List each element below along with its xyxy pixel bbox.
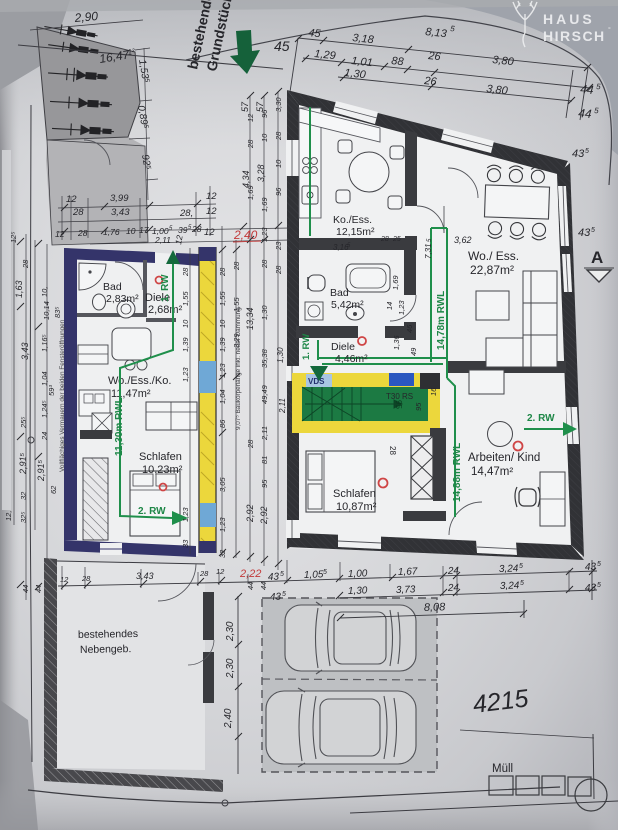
svg-text:3,28: 3,28 <box>256 164 266 182</box>
svg-text:1,23: 1,23 <box>218 517 227 532</box>
svg-text:44: 44 <box>578 106 593 121</box>
svg-text:26: 26 <box>423 75 438 88</box>
svg-text:5: 5 <box>597 582 601 589</box>
svg-text:44: 44 <box>246 582 255 590</box>
svg-text:12,15m²: 12,15m² <box>336 226 375 238</box>
svg-text:62: 62 <box>49 485 58 494</box>
svg-text:1,67: 1,67 <box>398 566 418 578</box>
svg-text:26: 26 <box>427 50 442 63</box>
svg-text:25: 25 <box>392 236 401 243</box>
svg-text:8,13: 8,13 <box>425 26 448 40</box>
svg-text:1,69: 1,69 <box>260 197 269 212</box>
svg-text:86: 86 <box>218 419 227 428</box>
svg-text:32: 32 <box>19 491 28 500</box>
svg-text:28,: 28, <box>179 208 193 219</box>
svg-text:44: 44 <box>21 585 30 593</box>
svg-text:14,88m RWL: 14,88m RWL <box>452 443 463 502</box>
svg-text:2. RW: 2. RW <box>527 413 555 424</box>
svg-text:2,11: 2,11 <box>260 426 269 441</box>
svg-text:12: 12 <box>204 227 215 238</box>
svg-text:4,46m²: 4,46m² <box>335 353 368 365</box>
svg-text:12: 12 <box>206 206 217 217</box>
svg-text:96: 96 <box>274 187 283 196</box>
svg-text:45: 45 <box>274 38 290 54</box>
svg-text:43: 43 <box>585 583 597 594</box>
svg-text:2,92: 2,92 <box>245 504 255 523</box>
svg-text:9,07⁵ Baukörperlänge inkl. neu: 9,07⁵ Baukörperlänge inkl. neuer Dämmung <box>235 307 242 430</box>
svg-text:12: 12 <box>173 234 185 245</box>
svg-text:88: 88 <box>391 55 405 68</box>
svg-text:32⁵: 32⁵ <box>19 512 28 524</box>
svg-text:2,11: 2,11 <box>278 398 287 414</box>
svg-text:3,24: 3,24 <box>499 563 519 575</box>
svg-text:24: 24 <box>447 566 460 577</box>
svg-text:°: ° <box>608 26 611 34</box>
svg-text:28: 28 <box>246 439 255 449</box>
svg-text:12,: 12, <box>4 511 13 521</box>
svg-text:13,34: 13,34 <box>245 307 255 330</box>
svg-text:12: 12 <box>66 194 77 205</box>
svg-text:44: 44 <box>259 582 268 590</box>
svg-text:10,: 10, <box>40 287 49 297</box>
svg-text:28: 28 <box>246 139 255 149</box>
svg-text:HAUS: HAUS <box>543 11 595 27</box>
svg-text:Arbeiten/ Kind: Arbeiten/ Kind <box>468 452 540 464</box>
svg-text:1,04: 1,04 <box>40 371 49 386</box>
svg-text:2. RW: 2. RW <box>138 506 166 517</box>
svg-text:Schlafen: Schlafen <box>333 488 376 500</box>
svg-text:59³: 59³ <box>47 385 56 396</box>
svg-text:1,23: 1,23 <box>397 300 406 315</box>
svg-text:3,24: 3,24 <box>500 580 520 592</box>
svg-text:2,92: 2,92 <box>259 506 269 525</box>
svg-text:2,68m²: 2,68m² <box>148 304 183 316</box>
svg-text:28: 28 <box>77 228 88 238</box>
svg-text:1,16⁵: 1,16⁵ <box>40 334 49 352</box>
svg-text:28: 28 <box>181 267 190 277</box>
svg-text:12⁵: 12⁵ <box>9 232 18 244</box>
svg-text:Nebengeb.: Nebengeb. <box>80 643 132 656</box>
svg-text:1,63: 1,63 <box>14 280 24 298</box>
svg-text:16: 16 <box>429 387 438 396</box>
svg-text:10,87m²: 10,87m² <box>336 501 377 513</box>
svg-text:5: 5 <box>585 148 589 155</box>
svg-text:10: 10 <box>274 159 283 168</box>
svg-text:5: 5 <box>282 591 286 598</box>
svg-text:95: 95 <box>260 479 269 488</box>
svg-text:95: 95 <box>414 402 423 411</box>
svg-text:5: 5 <box>597 561 601 568</box>
svg-text:81: 81 <box>260 456 269 464</box>
svg-text:28: 28 <box>72 207 84 218</box>
svg-text:Wo./ Ess.: Wo./ Ess. <box>468 249 519 263</box>
svg-text:43: 43 <box>585 562 597 573</box>
svg-text:1,29: 1,29 <box>314 48 337 62</box>
svg-text:5: 5 <box>591 227 595 234</box>
svg-text:83⁵: 83⁵ <box>53 307 62 319</box>
svg-text:7,31: 7,31 <box>424 243 433 259</box>
svg-text:28: 28 <box>21 259 30 269</box>
svg-text:3,18: 3,18 <box>352 32 375 46</box>
svg-text:1,55: 1,55 <box>181 291 190 306</box>
svg-text:HIRSCH: HIRSCH <box>543 28 606 44</box>
svg-text:5: 5 <box>519 563 523 570</box>
svg-text:Bad: Bad <box>330 287 349 299</box>
svg-text:39: 39 <box>178 225 188 235</box>
svg-text:3,80: 3,80 <box>486 83 509 97</box>
svg-text:2,91⁵: 2,91⁵ <box>36 459 46 482</box>
svg-text:3,43: 3,43 <box>136 571 154 581</box>
svg-text:3,62: 3,62 <box>454 235 472 245</box>
svg-text:Vollflächiges Vermauern der be: Vollflächiges Vermauern der beiden Fenst… <box>59 319 66 472</box>
svg-text:17: 17 <box>139 225 149 235</box>
svg-text:14,78m RWL: 14,78m RWL <box>436 291 447 350</box>
svg-text:Wo./Ess./Ko.: Wo./Ess./Ko. <box>108 375 171 387</box>
svg-text:12: 12 <box>246 113 255 122</box>
svg-text:43: 43 <box>268 572 280 583</box>
svg-text:28: 28 <box>260 259 269 269</box>
svg-text:Diele: Diele <box>331 341 355 353</box>
svg-text:49,49: 49,49 <box>260 384 269 404</box>
svg-text:95: 95 <box>394 400 403 409</box>
svg-text:33: 33 <box>181 539 190 548</box>
svg-text:2,11: 2,11 <box>154 235 171 245</box>
svg-text:14: 14 <box>385 302 394 310</box>
svg-text:49: 49 <box>409 347 418 356</box>
svg-text:5: 5 <box>323 569 327 576</box>
svg-text:43: 43 <box>572 148 585 160</box>
svg-text:1,30: 1,30 <box>276 347 285 363</box>
svg-text:28: 28 <box>274 265 283 275</box>
svg-text:24: 24 <box>447 583 460 594</box>
svg-text:1,30: 1,30 <box>260 305 269 320</box>
svg-text:28: 28 <box>274 131 283 141</box>
svg-text:3,30: 3,30 <box>274 97 283 112</box>
svg-text:1,24⁵: 1,24⁵ <box>40 400 49 418</box>
svg-text:10: 10 <box>218 319 227 328</box>
svg-text:5,42m²: 5,42m² <box>331 299 364 311</box>
svg-text:57: 57 <box>240 101 250 112</box>
svg-text:bestehendes: bestehendes <box>78 628 138 641</box>
svg-text:45: 45 <box>308 27 322 40</box>
svg-text:1,36: 1,36 <box>392 335 401 350</box>
svg-text:VDS: VDS <box>308 377 325 386</box>
svg-text:10,23m²: 10,23m² <box>142 464 183 476</box>
svg-text:3,43: 3,43 <box>20 342 30 360</box>
svg-text:Schlafen: Schlafen <box>139 451 182 463</box>
svg-text:43: 43 <box>578 227 591 239</box>
svg-text:28: 28 <box>232 261 241 271</box>
svg-text:1,55: 1,55 <box>218 291 227 306</box>
svg-text:3,99: 3,99 <box>110 193 129 204</box>
svg-text:2,30: 2,30 <box>225 658 236 679</box>
svg-text:3,43: 3,43 <box>111 207 130 218</box>
svg-text:28: 28 <box>380 236 389 243</box>
svg-text:10,14: 10,14 <box>42 301 51 320</box>
svg-text:2,40: 2,40 <box>223 708 234 729</box>
svg-text:1,00: 1,00 <box>348 568 368 580</box>
svg-text:12: 12 <box>60 575 69 584</box>
svg-text:35,38: 35,38 <box>260 348 269 368</box>
svg-text:57: 57 <box>255 101 265 112</box>
svg-text:1,76: 1,76 <box>103 227 120 237</box>
svg-text:1,23: 1,23 <box>181 507 190 522</box>
svg-text:25⁵: 25⁵ <box>19 417 28 430</box>
svg-text:12: 12 <box>216 567 225 576</box>
svg-text:46: 46 <box>405 324 414 333</box>
svg-text:8,08: 8,08 <box>424 601 447 614</box>
svg-text:23: 23 <box>274 241 283 251</box>
svg-text:10: 10 <box>260 133 269 142</box>
svg-text:10: 10 <box>181 319 190 328</box>
svg-text:1,23: 1,23 <box>218 363 227 378</box>
svg-text:1,30: 1,30 <box>348 585 368 597</box>
svg-text:3,73: 3,73 <box>396 584 416 596</box>
svg-text:12: 12 <box>206 191 217 202</box>
svg-text:12: 12 <box>55 229 65 239</box>
svg-text:2,91⁵: 2,91⁵ <box>18 452 28 475</box>
svg-text:44: 44 <box>580 82 595 97</box>
svg-text:5: 5 <box>520 580 524 587</box>
svg-text:1. RW: 1. RW <box>160 274 171 302</box>
svg-text:1,05: 1,05 <box>304 569 324 581</box>
svg-text:28: 28 <box>199 569 209 578</box>
svg-text:11,30m RWL: 11,30m RWL <box>114 397 125 456</box>
svg-text:Ko./Ess.: Ko./Ess. <box>333 214 372 226</box>
svg-text:43: 43 <box>270 592 282 603</box>
svg-text:22,87m²: 22,87m² <box>470 263 514 277</box>
svg-text:1,23: 1,23 <box>181 367 190 382</box>
svg-text:1,04: 1,04 <box>218 389 227 404</box>
svg-text:5: 5 <box>280 571 284 578</box>
svg-text:28: 28 <box>388 446 397 455</box>
svg-text:28: 28 <box>218 267 227 277</box>
svg-text:2,30: 2,30 <box>225 621 236 642</box>
svg-text:1. RW: 1. RW <box>301 334 312 360</box>
svg-text:1,39: 1,39 <box>181 337 190 352</box>
svg-text:2,40: 2,40 <box>233 228 258 242</box>
svg-text:14,47m²: 14,47m² <box>471 466 513 478</box>
svg-text:28: 28 <box>81 574 91 583</box>
svg-text:2,22: 2,22 <box>239 568 261 580</box>
svg-text:1,30: 1,30 <box>344 67 367 81</box>
svg-text:32: 32 <box>218 549 227 558</box>
svg-text:A: A <box>591 248 603 267</box>
svg-text:2,83m²: 2,83m² <box>106 293 139 305</box>
svg-text:3,05: 3,05 <box>218 477 227 492</box>
svg-text:24: 24 <box>40 432 49 441</box>
svg-text:10: 10 <box>126 226 136 236</box>
svg-text:1,39: 1,39 <box>218 337 227 352</box>
svg-text:Müll: Müll <box>492 763 513 775</box>
svg-text:4,34: 4,34 <box>241 170 251 188</box>
svg-text:Bad: Bad <box>103 281 122 293</box>
svg-text:2,90: 2,90 <box>73 9 99 25</box>
svg-text:1,69: 1,69 <box>391 275 400 290</box>
svg-text:3,80: 3,80 <box>492 54 515 68</box>
